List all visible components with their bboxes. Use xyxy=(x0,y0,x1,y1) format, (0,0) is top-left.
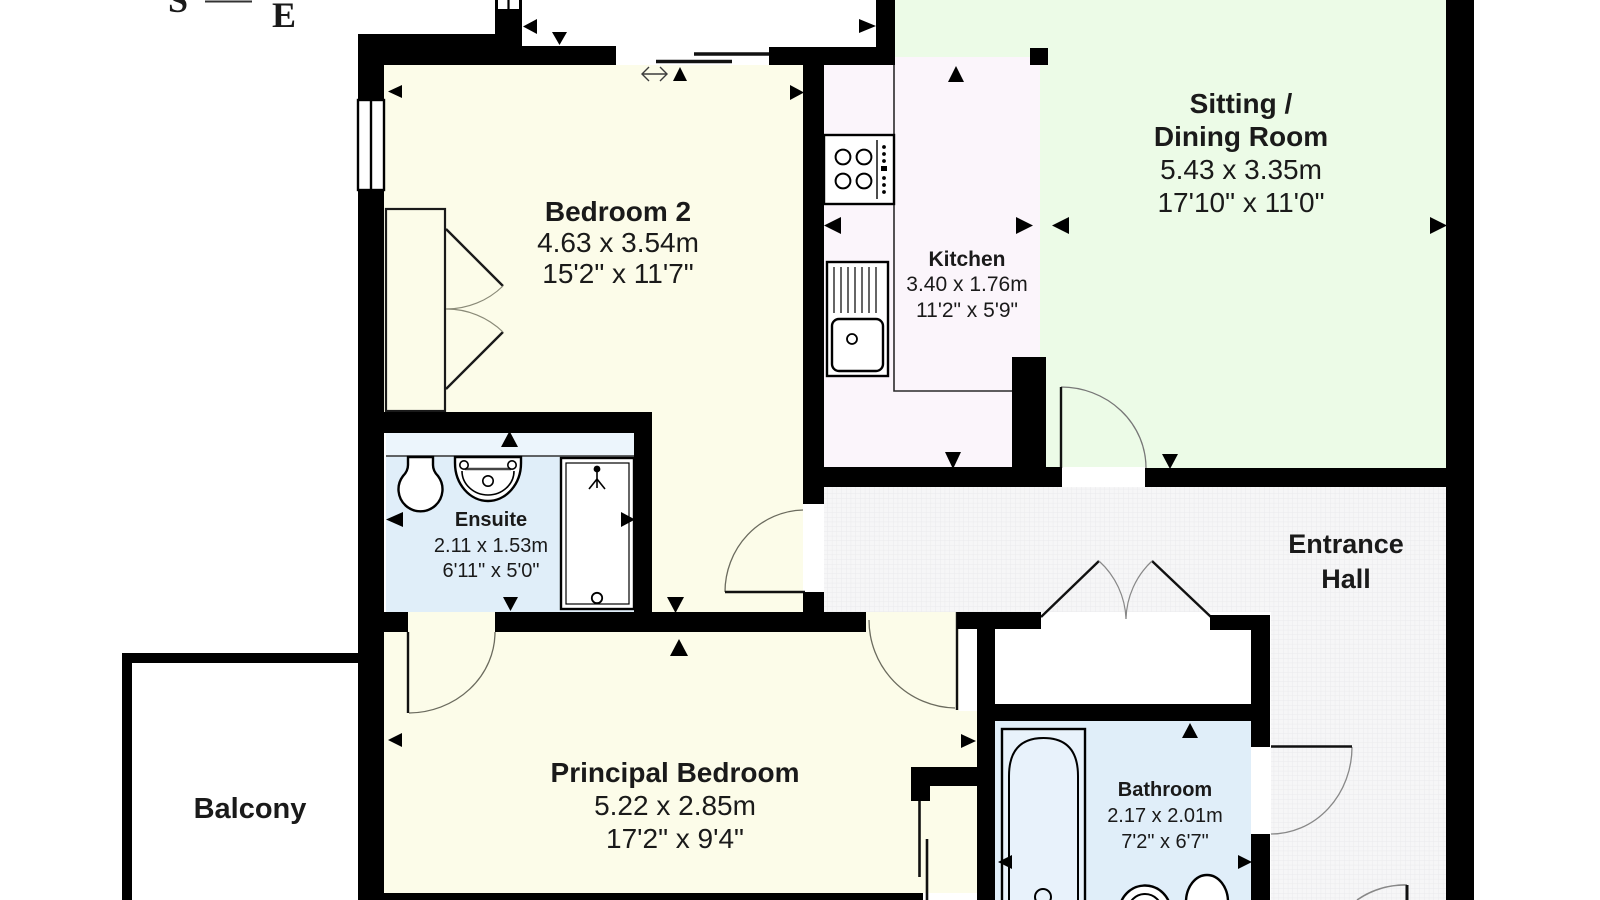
svg-text:7'2" x 6'7": 7'2" x 6'7" xyxy=(1121,831,1208,853)
svg-text:Dining Room: Dining Room xyxy=(1154,121,1328,152)
svg-text:Sitting /: Sitting / xyxy=(1190,88,1293,119)
svg-text:Ensuite: Ensuite xyxy=(455,509,527,531)
svg-text:6'11" x 5'0": 6'11" x 5'0" xyxy=(442,560,539,582)
svg-text:Bathroom: Bathroom xyxy=(1118,779,1212,801)
svg-text:Balcony: Balcony xyxy=(194,793,307,825)
svg-text:S: S xyxy=(168,0,188,20)
svg-text:15'2" x 11'7": 15'2" x 11'7" xyxy=(542,258,693,289)
svg-text:Kitchen: Kitchen xyxy=(928,248,1005,271)
svg-text:2.17 x 2.01m: 2.17 x 2.01m xyxy=(1107,805,1223,827)
svg-text:17'2" x 9'4": 17'2" x 9'4" xyxy=(606,823,744,854)
svg-text:4.63 x 3.54m: 4.63 x 3.54m xyxy=(537,227,699,258)
svg-text:3.40 x 1.76m: 3.40 x 1.76m xyxy=(906,273,1027,296)
svg-text:11'2" x 5'9": 11'2" x 5'9" xyxy=(916,299,1018,322)
svg-text:Entrance: Entrance xyxy=(1288,529,1404,559)
svg-text:E: E xyxy=(272,0,296,35)
svg-text:5.22 x 2.85m: 5.22 x 2.85m xyxy=(594,790,756,821)
svg-text:Principal Bedroom: Principal Bedroom xyxy=(551,757,800,788)
svg-text:17'10" x 11'0": 17'10" x 11'0" xyxy=(1157,187,1324,218)
svg-text:Hall: Hall xyxy=(1321,564,1371,594)
svg-text:Bedroom 2: Bedroom 2 xyxy=(545,196,691,227)
svg-text:5.43 x 3.35m: 5.43 x 3.35m xyxy=(1160,154,1322,185)
svg-text:2.11 x 1.53m: 2.11 x 1.53m xyxy=(434,535,548,557)
